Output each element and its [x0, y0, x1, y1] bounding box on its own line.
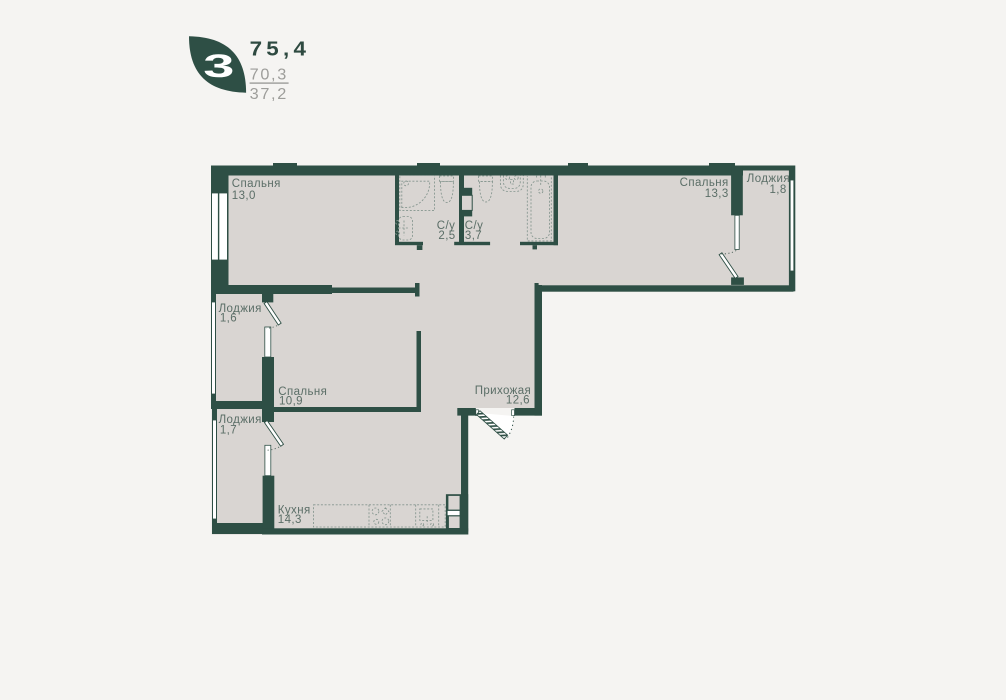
svg-text:14,3: 14,3 — [278, 514, 302, 526]
svg-text:Спальня: Спальня — [232, 178, 281, 190]
svg-text:1,6: 1,6 — [220, 313, 237, 325]
svg-text:13,3: 13,3 — [705, 188, 729, 200]
svg-text:1,7: 1,7 — [220, 425, 237, 437]
svg-text:37,2: 37,2 — [250, 86, 288, 103]
svg-text:1,8: 1,8 — [770, 184, 787, 196]
svg-text:3: 3 — [203, 48, 234, 84]
svg-text:13,0: 13,0 — [232, 190, 256, 202]
svg-text:70,3: 70,3 — [250, 67, 288, 84]
svg-text:12,6: 12,6 — [506, 395, 530, 407]
svg-text:3,7: 3,7 — [465, 230, 482, 242]
svg-text:2,5: 2,5 — [438, 230, 455, 242]
svg-text:75,4: 75,4 — [250, 39, 311, 61]
svg-text:10,9: 10,9 — [279, 396, 303, 408]
